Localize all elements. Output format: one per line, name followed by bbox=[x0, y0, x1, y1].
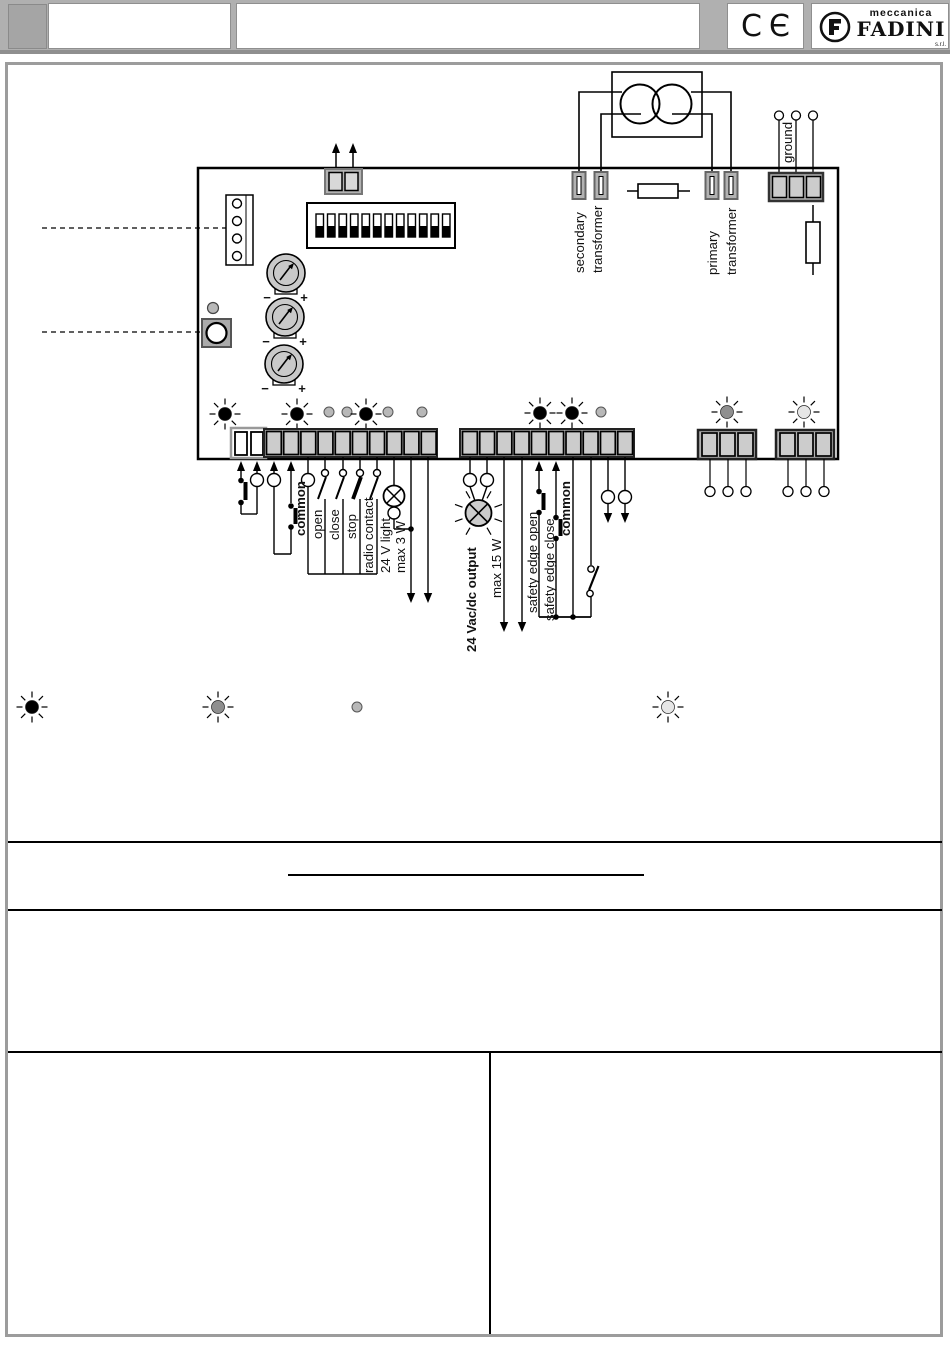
led-off-icon bbox=[383, 407, 393, 417]
terminal-strip-left bbox=[264, 429, 437, 457]
terminal-block-motor-1 bbox=[698, 430, 756, 497]
secondary-clip bbox=[595, 172, 608, 199]
legend-led-gray-icon bbox=[203, 692, 234, 723]
trimmer-1-minus: − bbox=[263, 290, 271, 305]
fadini-logo: meccanica FADINI s.r.l. bbox=[811, 3, 949, 49]
label-ground: ground bbox=[780, 122, 795, 163]
header-box-small bbox=[48, 3, 231, 49]
led-off-icon bbox=[596, 407, 606, 417]
legend-led-on-icon bbox=[17, 692, 48, 723]
label-24vac-output: 24 Vac/dc output bbox=[464, 547, 479, 652]
trimmer-1-plus: + bbox=[300, 290, 308, 305]
label-common-mid: common bbox=[558, 481, 573, 536]
trimmer-2-plus: + bbox=[299, 334, 307, 349]
section-underline bbox=[288, 874, 644, 876]
trimmer-2-minus: − bbox=[262, 334, 270, 349]
led-on-icon bbox=[351, 399, 382, 430]
arrow-down-icon bbox=[604, 513, 612, 523]
section-divider-3 bbox=[8, 1051, 942, 1053]
arrow-down-icon bbox=[424, 593, 432, 603]
logo-fadini: FADINI bbox=[855, 19, 947, 40]
led-off-icon bbox=[324, 407, 334, 417]
signal-led-icon bbox=[208, 303, 219, 314]
ce-mark: CЄ bbox=[727, 3, 804, 49]
section-divider-2 bbox=[8, 909, 942, 911]
logo-suffix: s.r.l. bbox=[935, 42, 946, 48]
lamp-24v-icon bbox=[384, 486, 405, 507]
label-24v-light: 24 V light bbox=[378, 518, 393, 573]
section-divider-1 bbox=[8, 841, 942, 843]
arrow-down-icon bbox=[500, 622, 508, 632]
led-on-icon bbox=[210, 399, 241, 430]
label-stop: stop bbox=[344, 514, 359, 539]
programming-button bbox=[202, 319, 231, 347]
led-on-icon bbox=[282, 399, 313, 430]
dip-switch-block bbox=[307, 203, 455, 248]
header-box-large bbox=[236, 3, 700, 49]
transformer-icon bbox=[579, 72, 731, 172]
antenna-arrow-icon bbox=[332, 143, 340, 153]
label-max-15w: max 15 W bbox=[489, 538, 504, 598]
trimmer-3-plus: + bbox=[298, 381, 306, 396]
led-off-icon bbox=[417, 407, 427, 417]
led-flashing-gray-icon bbox=[712, 397, 743, 428]
column-divider bbox=[489, 1051, 491, 1334]
primary-clip bbox=[725, 172, 738, 199]
label-secondary-transformer-1: secondary bbox=[572, 212, 587, 273]
legend-leds bbox=[17, 692, 684, 723]
label-secondary-transformer-2: transformer bbox=[590, 205, 605, 273]
ce-mark-text: CЄ bbox=[734, 9, 797, 44]
ground-terminal-block: ground bbox=[769, 111, 823, 201]
fadini-logo-icon bbox=[817, 9, 853, 45]
label-primary-transformer-1: primary bbox=[705, 231, 720, 275]
page-header: CЄ meccanica FADINI s.r.l. bbox=[0, 0, 950, 50]
header-separator bbox=[0, 50, 950, 54]
legend-led-light-icon bbox=[653, 692, 684, 723]
secondary-clip bbox=[573, 172, 586, 199]
connector-2pole bbox=[231, 428, 266, 458]
label-radio-contact: radio contact bbox=[361, 497, 376, 573]
led-off-icon bbox=[342, 407, 352, 417]
wiring-diagram: − + − + − + bbox=[8, 65, 942, 837]
radio-module-connector bbox=[226, 195, 253, 265]
legend-led-off-icon bbox=[352, 702, 362, 712]
label-common-left: common bbox=[293, 481, 308, 536]
led-on-icon bbox=[525, 398, 556, 429]
label-open: open bbox=[310, 510, 325, 539]
antenna-arrow-icon bbox=[349, 143, 357, 153]
primary-clip bbox=[706, 172, 719, 199]
led-flashing-light-icon bbox=[789, 397, 820, 428]
switch-blade-close bbox=[336, 477, 344, 499]
antenna-terminal bbox=[325, 143, 362, 194]
switch-blade-open bbox=[318, 477, 326, 499]
arrow-down-icon bbox=[621, 513, 629, 523]
header-gray-square bbox=[8, 4, 47, 49]
label-safety-edge-close: safety edge close bbox=[542, 518, 557, 621]
trimmer-3-minus: − bbox=[261, 381, 269, 396]
led-on-icon bbox=[557, 398, 588, 429]
switch-blade-radio bbox=[370, 477, 378, 499]
arrow-down-icon bbox=[518, 622, 526, 632]
terminal-block-motor-2 bbox=[776, 430, 834, 497]
label-safety-edge-open: safety edge open bbox=[525, 512, 540, 613]
arrow-down-icon bbox=[407, 593, 415, 603]
switch-blade-stop bbox=[353, 477, 361, 499]
label-primary-transformer-2: transformer bbox=[724, 207, 739, 275]
lamp-output-icon bbox=[455, 491, 502, 534]
label-close: close bbox=[327, 509, 342, 540]
label-max-3w: max 3 W bbox=[393, 520, 408, 573]
terminal-strip-middle bbox=[460, 429, 634, 457]
